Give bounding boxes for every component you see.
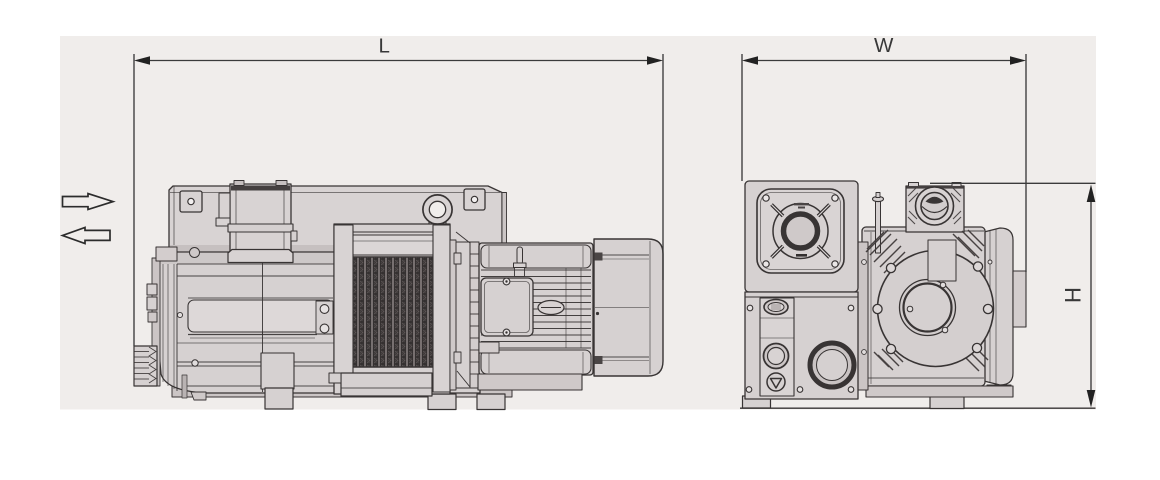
svg-text:W: W <box>874 34 894 57</box>
svg-text:H: H <box>1061 287 1086 303</box>
svg-text:L: L <box>379 35 390 58</box>
